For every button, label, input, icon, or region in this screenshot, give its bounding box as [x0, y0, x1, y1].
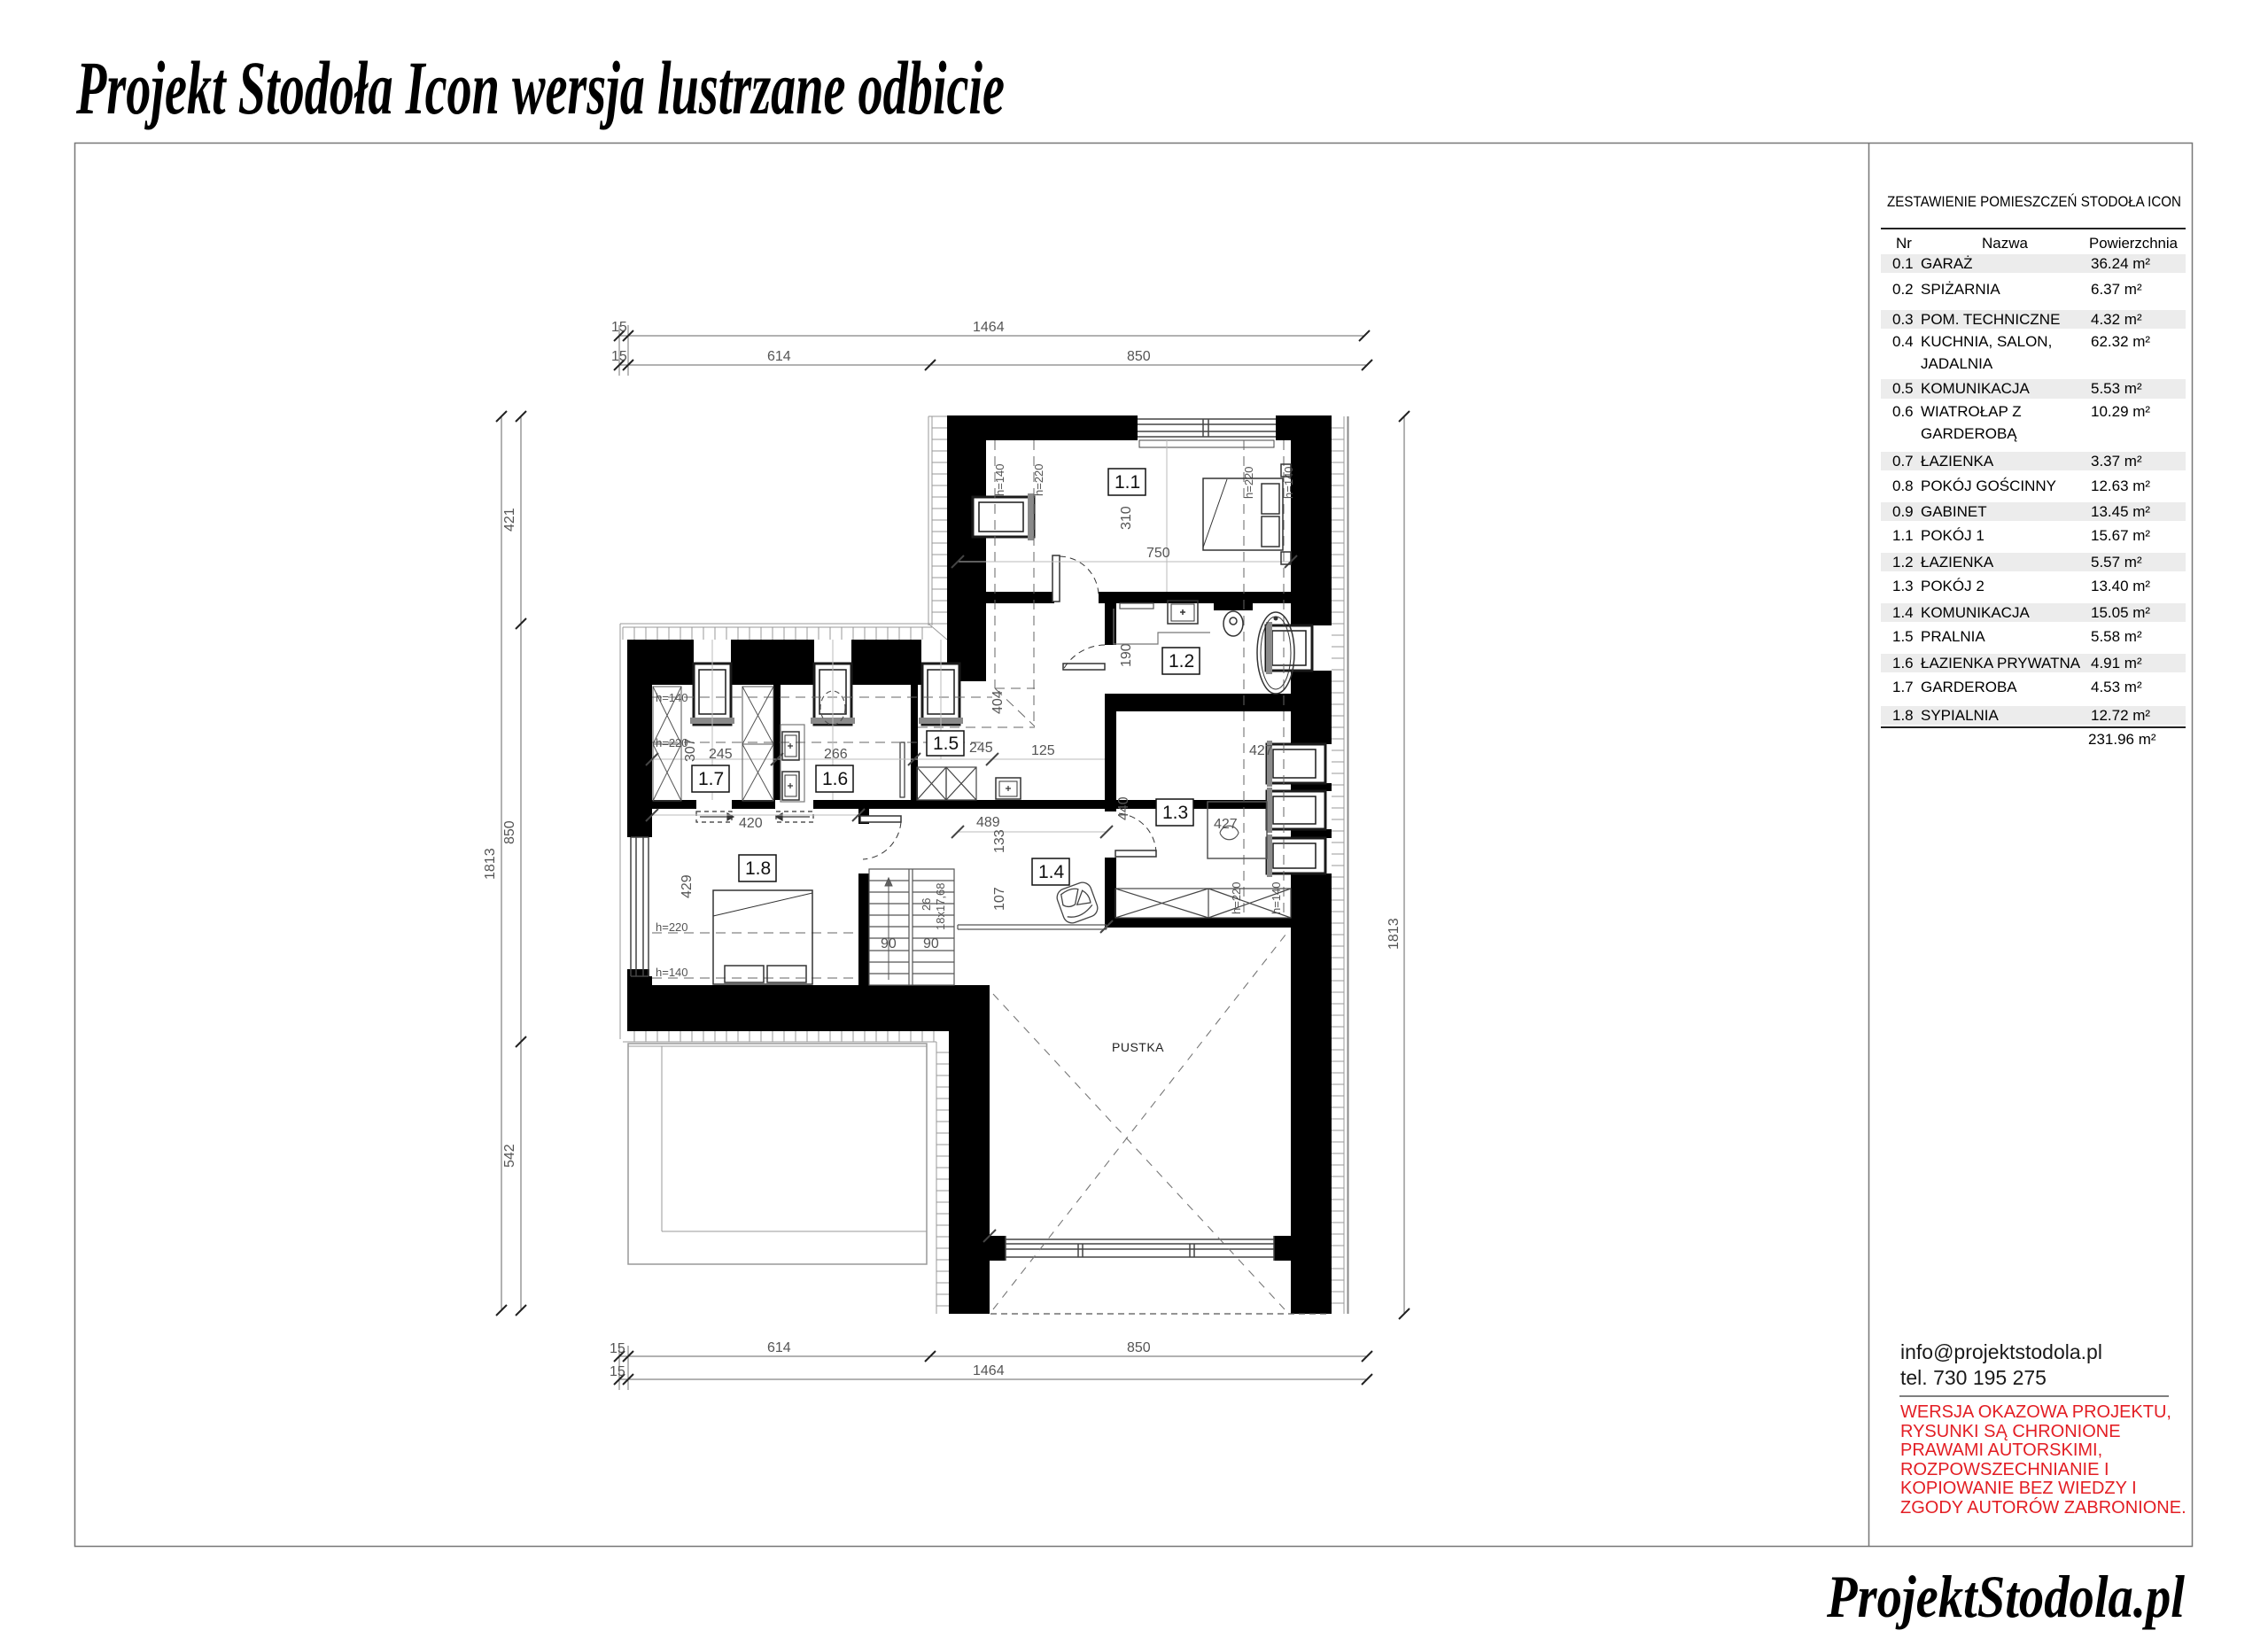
svg-text:1.2: 1.2 [1169, 651, 1194, 672]
svg-text:614: 614 [767, 349, 791, 364]
svg-text:PUSTKA: PUSTKA [1112, 1040, 1164, 1054]
svg-text:1.1: 1.1 [1892, 527, 1914, 544]
svg-text:1.6: 1.6 [822, 769, 848, 789]
svg-text:POKÓJ 1: POKÓJ 1 [1921, 527, 1984, 544]
svg-text:WERSJA OKAZOWA PROJEKTU,: WERSJA OKAZOWA PROJEKTU, [1900, 1402, 2171, 1422]
svg-text:133: 133 [992, 829, 1007, 853]
svg-text:Nazwa: Nazwa [1982, 235, 2029, 252]
svg-text:427: 427 [1249, 743, 1273, 758]
svg-text:850: 850 [1127, 349, 1151, 364]
svg-text:307: 307 [683, 738, 698, 762]
svg-text:h=140: h=140 [993, 463, 1006, 496]
svg-text:SYPIALNIA: SYPIALNIA [1921, 707, 2000, 724]
svg-text:440: 440 [1116, 796, 1131, 820]
svg-text:427: 427 [1214, 817, 1238, 832]
svg-text:RYSUNKI SĄ CHRONIONE: RYSUNKI SĄ CHRONIONE [1900, 1422, 2121, 1441]
svg-text:Nr: Nr [1896, 235, 1912, 252]
svg-text:4.91 m²: 4.91 m² [2091, 655, 2142, 672]
svg-text:5.58 m²: 5.58 m² [2091, 628, 2142, 645]
svg-text:12.63 m²: 12.63 m² [2091, 477, 2150, 494]
svg-text:Projekt Stodoła Icon wersja lu: Projekt Stodoła Icon wersja lustrzane od… [75, 45, 1005, 130]
svg-text:ŁAZIENKA: ŁAZIENKA [1921, 453, 1994, 470]
svg-text:245: 245 [709, 747, 733, 762]
svg-text:1.7: 1.7 [1892, 679, 1914, 695]
svg-text:429: 429 [680, 874, 695, 898]
svg-text:POKÓJ GOŚCINNY: POKÓJ GOŚCINNY [1921, 477, 2056, 494]
svg-text:36.24 m²: 36.24 m² [2091, 255, 2150, 272]
svg-text:1.5: 1.5 [1892, 628, 1914, 645]
svg-text:KOMUNIKACJA: KOMUNIKACJA [1921, 604, 2030, 621]
svg-text:3.37 m²: 3.37 m² [2091, 453, 2142, 470]
svg-text:ProjektStodola.pl: ProjektStodola.pl [1826, 1563, 2185, 1630]
svg-text:PRALNIA: PRALNIA [1921, 628, 1985, 645]
svg-text:ROZPOWSZECHNIANIE I: ROZPOWSZECHNIANIE I [1900, 1460, 2109, 1479]
svg-text:6.37 m²: 6.37 m² [2091, 281, 2142, 298]
svg-text:1.1: 1.1 [1115, 472, 1140, 493]
svg-text:15: 15 [610, 1364, 625, 1379]
svg-text:5.57 m²: 5.57 m² [2091, 554, 2142, 571]
svg-text:750: 750 [1146, 546, 1170, 561]
svg-text:1.4: 1.4 [1038, 862, 1065, 882]
svg-text:WIATROŁAP Z: WIATROŁAP Z [1921, 403, 2022, 420]
svg-text:0.4: 0.4 [1892, 333, 1914, 350]
svg-text:h=140: h=140 [1270, 881, 1283, 914]
svg-text:1464: 1464 [973, 320, 1005, 335]
svg-text:1464: 1464 [973, 1363, 1005, 1378]
svg-text:266: 266 [824, 747, 848, 762]
svg-text:15.67 m²: 15.67 m² [2091, 527, 2150, 544]
svg-text:13.45 m²: 13.45 m² [2091, 503, 2150, 520]
svg-text:26: 26 [920, 898, 933, 911]
svg-text:0.3: 0.3 [1892, 311, 1914, 328]
svg-text:245: 245 [969, 741, 993, 756]
svg-text:1.2: 1.2 [1892, 554, 1914, 571]
svg-text:614: 614 [767, 1340, 791, 1355]
svg-text:GARAŻ: GARAŻ [1921, 255, 1973, 272]
svg-text:GARDEROBĄ: GARDEROBĄ [1921, 425, 2017, 442]
svg-text:1.3: 1.3 [1892, 578, 1914, 594]
svg-text:190: 190 [1119, 643, 1134, 667]
svg-text:1.4: 1.4 [1892, 604, 1914, 621]
svg-text:404: 404 [990, 690, 1006, 714]
svg-text:4.53 m²: 4.53 m² [2091, 679, 2142, 695]
svg-text:1.5: 1.5 [933, 734, 959, 754]
svg-text:PRAWAMI AUTORSKIMI,: PRAWAMI AUTORSKIMI, [1900, 1440, 2102, 1460]
svg-text:1.3: 1.3 [1162, 803, 1188, 823]
svg-text:850: 850 [502, 820, 517, 844]
svg-text:KUCHNIA, SALON,: KUCHNIA, SALON, [1921, 333, 2052, 350]
svg-text:15: 15 [611, 320, 627, 335]
svg-text:0.1: 0.1 [1892, 255, 1914, 272]
svg-text:1.7: 1.7 [698, 769, 724, 789]
svg-text:0.8: 0.8 [1892, 477, 1914, 494]
svg-text:10.29 m²: 10.29 m² [2091, 403, 2150, 420]
svg-text:421: 421 [502, 508, 517, 532]
svg-text:62.32 m²: 62.32 m² [2091, 333, 2150, 350]
svg-text:0.2: 0.2 [1892, 281, 1914, 298]
svg-text:Powierzchnia: Powierzchnia [2089, 235, 2179, 252]
svg-text:ŁAZIENKA PRYWATNA: ŁAZIENKA PRYWATNA [1921, 655, 2081, 672]
svg-text:h=220: h=220 [656, 920, 688, 934]
svg-text:h=140: h=140 [656, 966, 688, 979]
svg-text:12.72 m²: 12.72 m² [2091, 707, 2150, 724]
svg-text:tel. 730 195 275: tel. 730 195 275 [1900, 1366, 2047, 1389]
svg-text:15.05 m²: 15.05 m² [2091, 604, 2150, 621]
svg-text:h=220: h=220 [1032, 463, 1045, 496]
svg-text:ZGODY AUTORÓW ZABRONIONE.: ZGODY AUTORÓW ZABRONIONE. [1900, 1497, 2186, 1518]
svg-text:info@projektstodola.pl: info@projektstodola.pl [1900, 1340, 2102, 1363]
svg-text:SPIŻARNIA: SPIŻARNIA [1921, 281, 2000, 298]
svg-text:1.8: 1.8 [1892, 707, 1914, 724]
svg-text:90: 90 [923, 936, 939, 951]
svg-text:KOMUNIKACJA: KOMUNIKACJA [1921, 380, 2030, 397]
svg-text:542: 542 [502, 1144, 517, 1168]
svg-text:15: 15 [610, 1341, 625, 1356]
svg-text:GABINET: GABINET [1921, 503, 1987, 520]
svg-text:GARDEROBA: GARDEROBA [1921, 679, 2017, 695]
svg-text:1813: 1813 [483, 848, 498, 880]
svg-text:ŁAZIENKA: ŁAZIENKA [1921, 554, 1994, 571]
svg-text:489: 489 [976, 815, 1000, 830]
svg-text:JADALNIA: JADALNIA [1921, 355, 1993, 372]
svg-text:h=220: h=220 [1242, 466, 1255, 499]
svg-text:5.53 m²: 5.53 m² [2091, 380, 2142, 397]
svg-text:0.5: 0.5 [1892, 380, 1914, 397]
svg-text:h=140: h=140 [1282, 466, 1295, 499]
svg-text:1.6: 1.6 [1892, 655, 1914, 672]
svg-text:15: 15 [611, 349, 627, 364]
svg-text:POKÓJ 2: POKÓJ 2 [1921, 578, 1984, 594]
svg-text:850: 850 [1127, 1340, 1151, 1355]
svg-text:13.40 m²: 13.40 m² [2091, 578, 2150, 594]
svg-text:1.8: 1.8 [745, 858, 771, 879]
svg-text:ZESTAWIENIE POMIESZCZEŃ STODOŁ: ZESTAWIENIE POMIESZCZEŃ STODOŁA ICON [1887, 193, 2181, 210]
svg-text:231.96 m²: 231.96 m² [2088, 731, 2156, 748]
svg-text:KOPIOWANIE BEZ WIEDZY I: KOPIOWANIE BEZ WIEDZY I [1900, 1479, 2137, 1498]
svg-text:0.6: 0.6 [1892, 403, 1914, 420]
svg-text:90: 90 [881, 936, 897, 951]
svg-text:4.32 m²: 4.32 m² [2091, 311, 2142, 328]
svg-text:0.7: 0.7 [1892, 453, 1914, 470]
svg-text:18x17,68: 18x17,68 [934, 883, 947, 931]
svg-text:POM. TECHNICZNE: POM. TECHNICZNE [1921, 311, 2060, 328]
svg-text:1813: 1813 [1386, 918, 1402, 950]
svg-text:0.9: 0.9 [1892, 503, 1914, 520]
svg-text:420: 420 [739, 816, 763, 831]
svg-text:310: 310 [1119, 506, 1134, 530]
svg-text:125: 125 [1031, 743, 1055, 758]
svg-text:107: 107 [992, 887, 1007, 911]
